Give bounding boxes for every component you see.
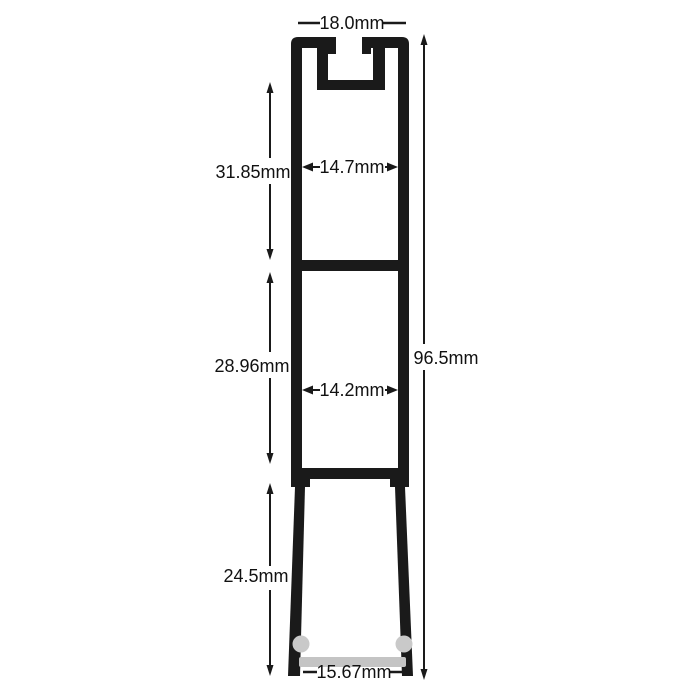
diffuser-endcap-left — [293, 636, 310, 653]
diagram-stage: 18.0mm 14.7mm 14.2mm 31.85mm 28.96mm 24.… — [0, 0, 700, 700]
dim-bottom-inner-label: 15.67mm — [316, 662, 391, 682]
dim-middle-section-label: 28.96mm — [214, 356, 289, 376]
profile-web-upper — [291, 260, 409, 271]
profile-web-lower — [291, 468, 409, 479]
dim-top-inner-arrow-right-head — [387, 163, 398, 172]
dim-top-inner-label: 14.7mm — [319, 157, 384, 177]
dim-top-inner-arrow-left-head — [302, 163, 313, 172]
dim-middle-section-tip-down — [267, 453, 274, 464]
dim-top-section-tip-up — [267, 82, 274, 93]
dim-overall-width-label: 18.0mm — [319, 13, 384, 33]
profile-top-left-flange — [291, 37, 336, 479]
diffuser-endcap-right — [396, 636, 413, 653]
profile-top-right-flange — [362, 37, 409, 479]
dim-bottom-section-tip-down — [267, 665, 274, 676]
dim-middle-inner-arrow-left-head — [302, 386, 313, 395]
profile-step-left — [291, 479, 310, 487]
dim-middle-inner-arrow-right-head — [387, 386, 398, 395]
dim-overall-height-tip-up — [421, 34, 428, 45]
dim-bottom-section-tip-up — [267, 483, 274, 494]
dim-bottom-section-label: 24.5mm — [223, 566, 288, 586]
profile-screw-pocket — [317, 48, 385, 90]
dim-middle-section-tip-up — [267, 272, 274, 283]
dim-overall-height-tip-down — [421, 669, 428, 680]
profile-step-right — [390, 479, 409, 487]
dim-top-section-tip-down — [267, 249, 274, 260]
dim-middle-inner-label: 14.2mm — [319, 380, 384, 400]
dim-overall-height-label: 96.5mm — [413, 348, 478, 368]
profile-cross-section-diagram: 18.0mm 14.7mm 14.2mm 31.85mm 28.96mm 24.… — [0, 0, 700, 700]
dim-top-section-label: 31.85mm — [215, 162, 290, 182]
